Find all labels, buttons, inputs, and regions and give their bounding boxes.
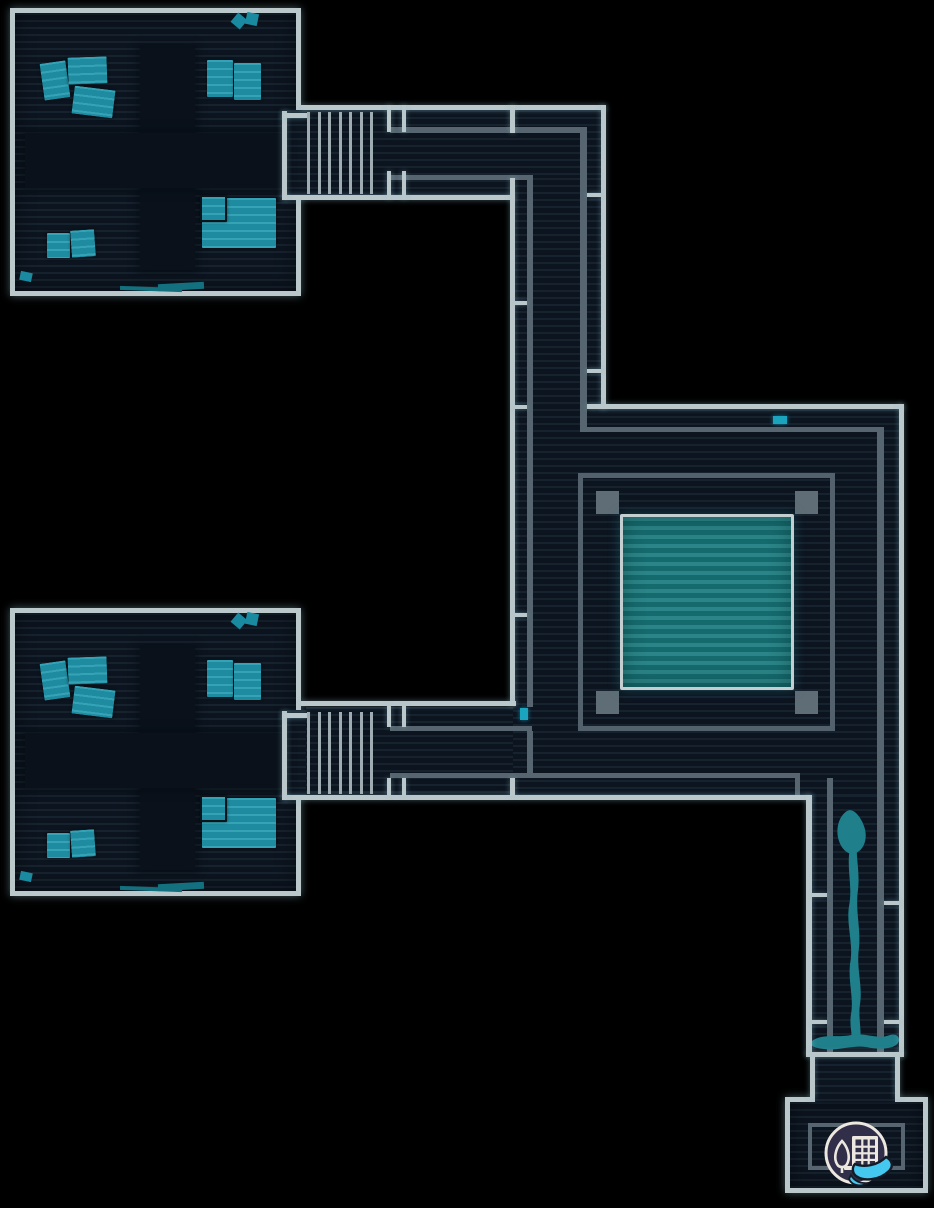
wall-outer [510,178,515,706]
map-stage [0,0,934,1208]
wall-outer [301,105,606,110]
door-tick [387,706,391,727]
wall-outer [806,795,812,1057]
stair-bar [307,712,310,794]
stair-bar [360,712,363,794]
stair-bar [360,112,363,194]
door-tick [510,778,515,796]
door-tick [387,105,391,132]
lane-tick [515,405,527,409]
stair-bracket [282,111,287,200]
lane-tick [884,901,899,905]
lane-tick [587,369,601,373]
stair-bar [318,712,321,794]
lane-tick [515,301,527,305]
door-tick [402,778,406,796]
stair-bar [339,112,342,194]
wall-outer [899,404,904,1057]
lane-tick [812,893,827,897]
wall-outer [806,1052,904,1057]
lane-tick [515,613,527,617]
stair-bar [370,712,373,794]
door-tick [402,171,406,199]
stair-bar [370,112,373,194]
stair-bar [307,112,310,194]
lane-tick [884,1020,899,1024]
map-geometry-walls [0,0,934,1208]
stair-bar [328,712,331,794]
stair-bar [349,112,352,194]
stair-bar [349,712,352,794]
wall-outer [587,404,904,409]
lane-tick [812,1020,827,1024]
stair-bar [328,112,331,194]
door-tick [402,105,406,132]
stair-bar [318,112,321,194]
wall-outer [601,105,606,409]
wall-outer [510,105,515,133]
stair-bar [339,712,342,794]
facility-location-badge[interactable] [820,1117,904,1197]
wall-outer [810,1057,815,1099]
door-tick [402,706,406,727]
wall-outer [895,1057,900,1099]
door-tick [387,171,391,199]
wall-outer [301,701,516,706]
door-tick [387,778,391,796]
lane-tick [587,193,601,197]
stair-bracket [282,113,308,118]
stair-bracket [282,713,308,718]
wall-outer [282,795,812,800]
stair-bracket [282,711,287,800]
wall-outer [282,195,515,200]
